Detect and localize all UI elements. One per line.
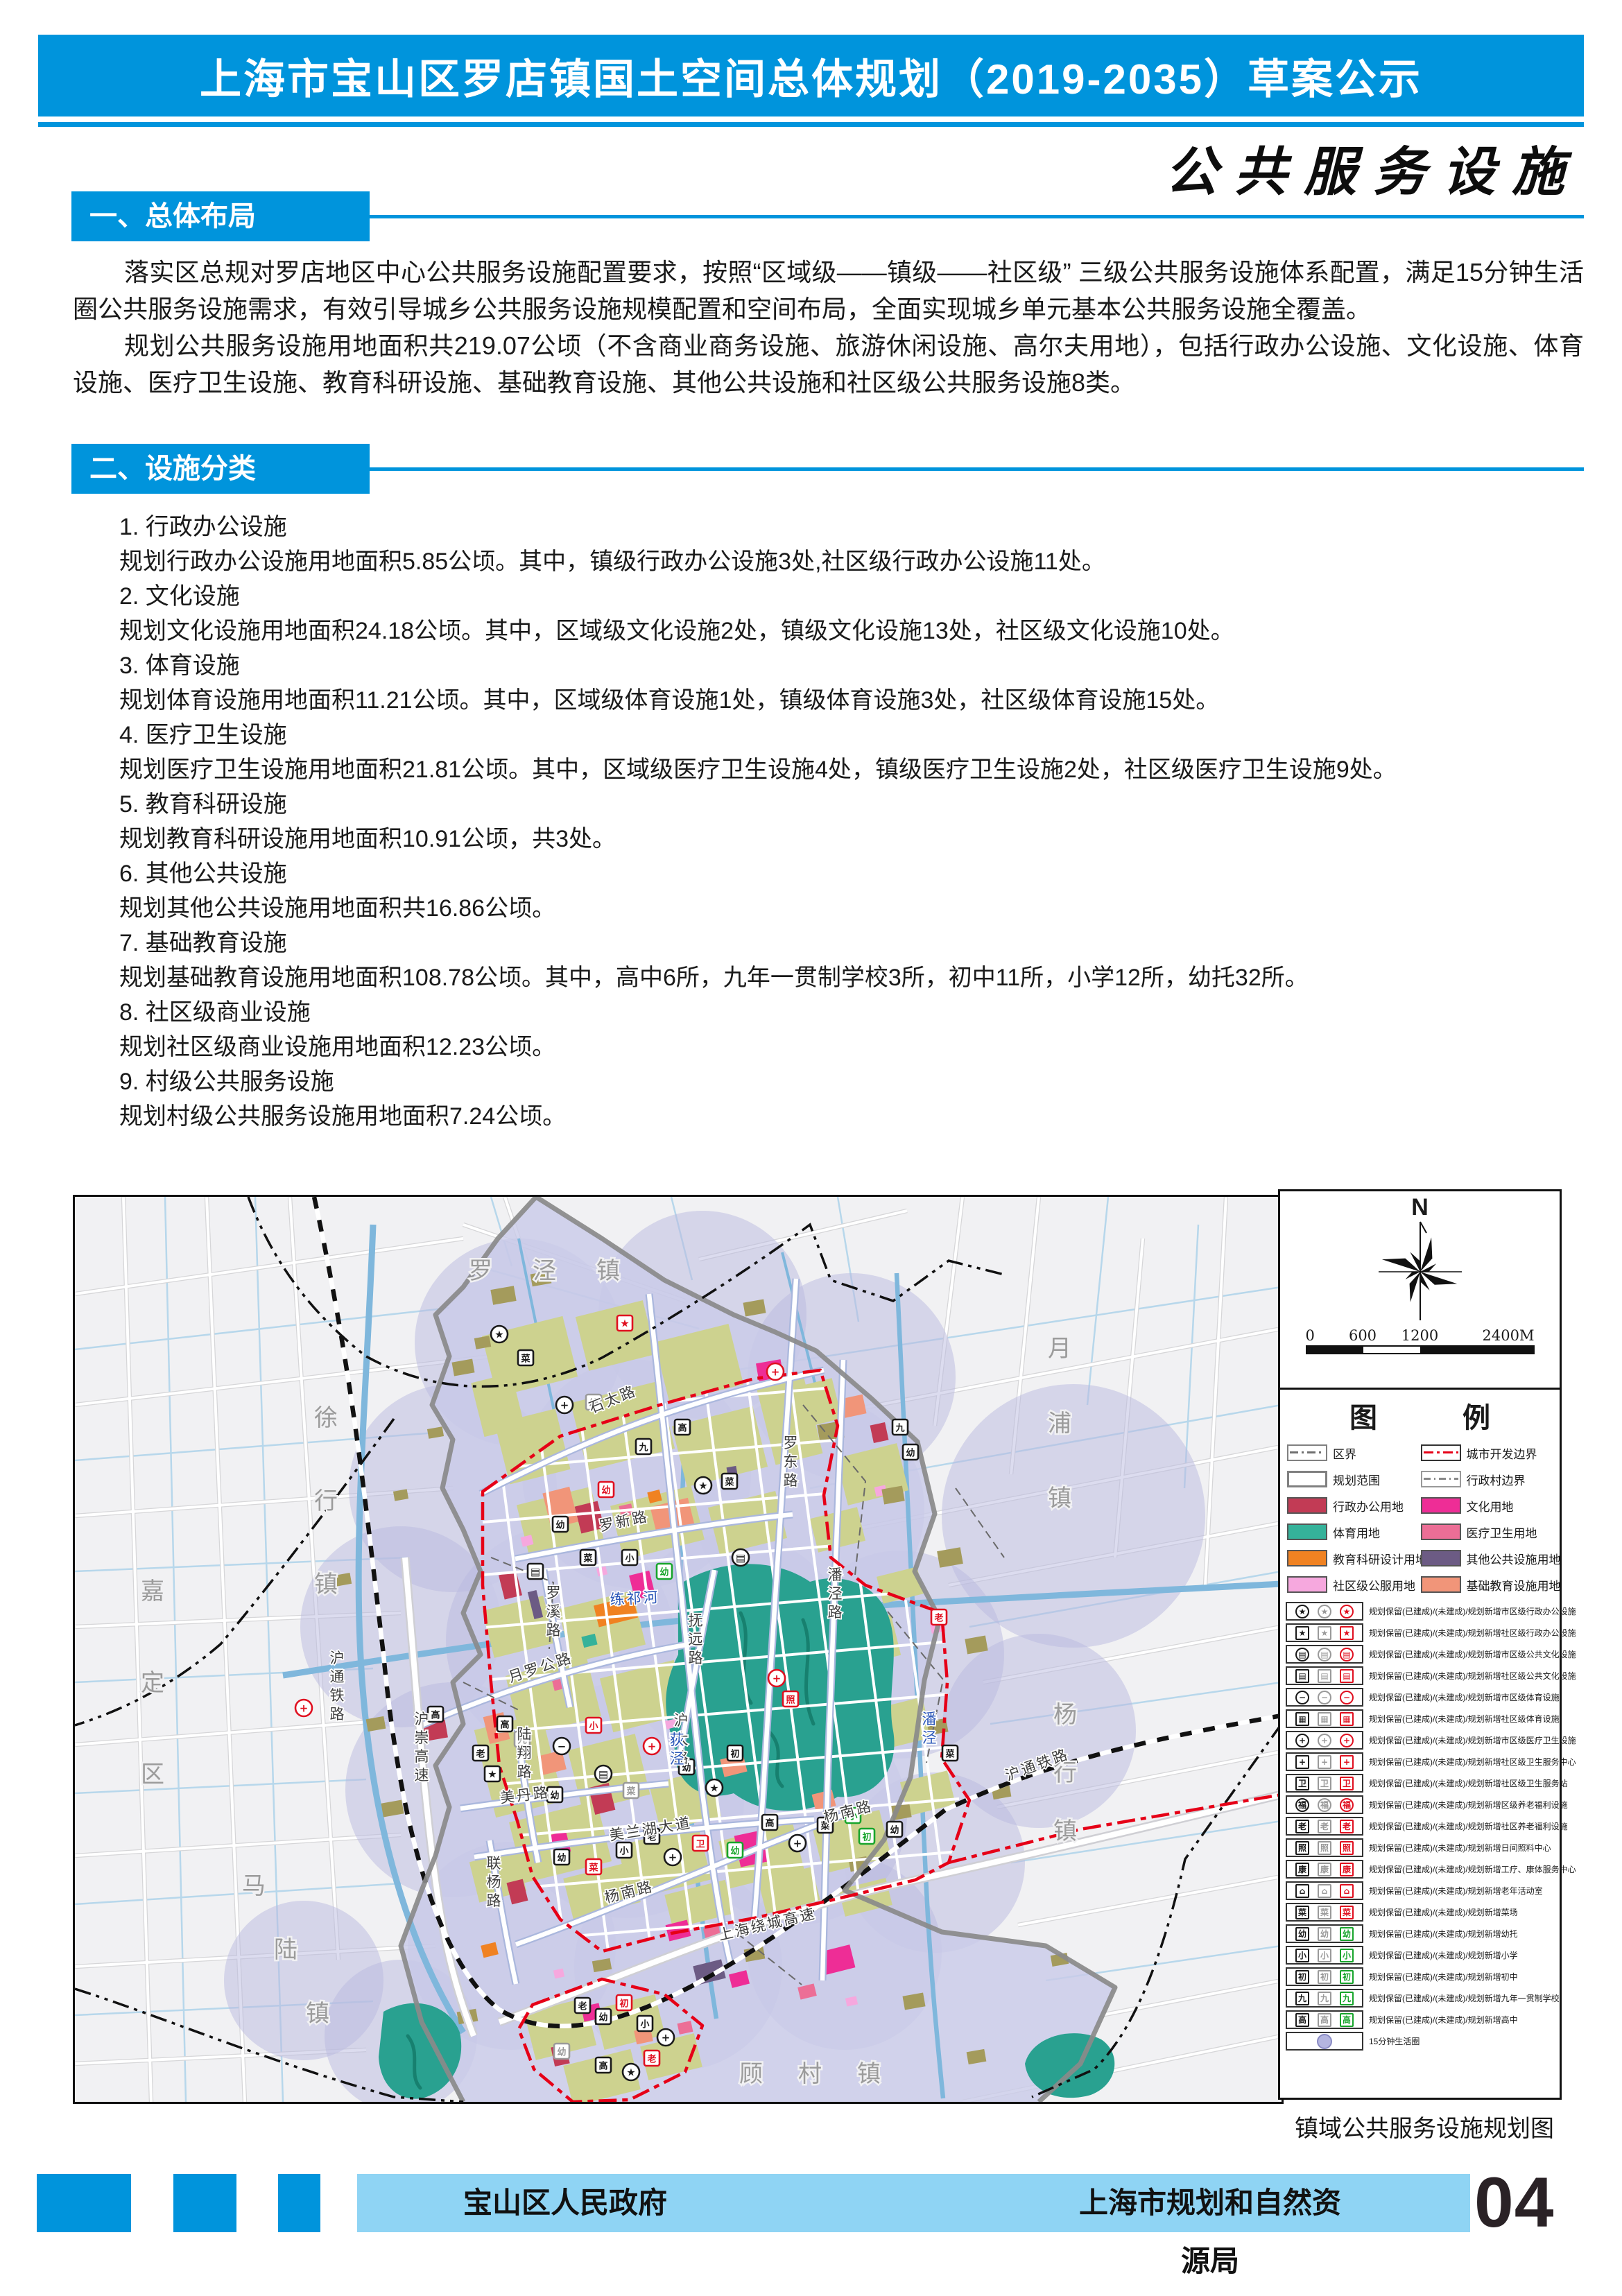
facility-item-desc: 规划教育科研设施用地面积10.91公顷，共3处。 [119,822,1582,856]
scale-ticks: 060012002400M [1306,1327,1535,1345]
footer-org-right: 上海市规划和自然资源局 [1071,2174,1349,2232]
svg-text:幼: 幼 [557,2047,566,2058]
svg-text:▤: ▤ [598,1768,608,1781]
facility-item-desc: 规划体育设施用地面积11.21公顷。其中，区域级体育设施1处，镇级体育设施3处，… [119,683,1582,718]
facility-symbol-icon: 福 [1295,1798,1309,1812]
legend-symbol-item: −−−规划保留(已建成)/(未建成)/规划新增市区级体育设施 [1286,1686,1555,1708]
facility-symbol-icon: 照 [1295,1841,1309,1855]
road-label: 高 [415,1749,429,1765]
svg-text:高: 高 [765,1818,774,1829]
facility-symbol-icon: 照 [1340,1841,1354,1855]
page-number: 04 [1474,2162,1554,2243]
svg-text:老: 老 [646,2054,656,2065]
facility-symbol-icon: 小 [1318,1949,1331,1962]
legend-symbol-item: 福福福规划保留(已建成)/(未建成)/规划新增区级养老福利设施 [1286,1794,1555,1815]
svg-text:九: 九 [638,1443,648,1453]
facility-symbol-icon: ▤ [1318,1669,1331,1683]
facility-symbol-icon: 卫 [1295,1777,1309,1790]
road-label: 铁 [330,1688,345,1704]
road-label: 东 [784,1454,798,1470]
svg-text:菜: 菜 [625,1786,635,1797]
facility-icon: 老 [931,1609,947,1625]
facility-icon: 初 [727,1745,743,1761]
facility-icon: 老 [473,1745,488,1761]
svg-text:菜: 菜 [583,1553,592,1564]
page-title: 上海市宝山区罗店镇国土空间总体规划（2019-2035）草案公示 [200,46,1422,106]
paragraph: 规划公共服务设施用地面积共219.07公顷（不含商业商务设施、旅游休闲设施、高尔… [73,327,1584,401]
life-circle-icon [1317,2034,1332,2049]
svg-text:幼: 幼 [906,1448,915,1459]
facility-icon: 老 [644,2051,659,2066]
svg-text:老: 老 [475,1749,485,1760]
facility-icon: − [553,1738,570,1754]
road-label: 杨 [487,1874,501,1890]
facility-symbol-icon: 康 [1295,1863,1309,1876]
facility-icon: 菜 [722,1474,737,1489]
legend-item: 规划范围 [1287,1471,1421,1488]
legend-symbol-item: 幼幼幼规划保留(已建成)/(未建成)/规划新增幼托 [1286,1923,1555,1944]
road-label: 罗 [784,1435,798,1451]
facility-item-title: 2. 文化设施 [119,579,1582,614]
facility-symbol-icon: 福 [1340,1798,1354,1812]
facility-item-title: 8. 社区级商业设施 [119,995,1582,1030]
facility-symbol-icon: 高 [1295,2013,1309,2027]
north-scale-box: N 060012002400M [1280,1191,1560,1390]
svg-text:+: + [648,1741,657,1753]
facility-icon: 幼 [598,1482,614,1497]
header-bar: 上海市宝山区罗店镇国土空间总体规划（2019-2035）草案公示 [38,35,1584,116]
facility-icon: 小 [616,1842,632,1858]
road-label: 路 [689,1650,703,1666]
poster-page: 上海市宝山区罗店镇国土空间总体规划（2019-2035）草案公示 公共服务设施 … [0,0,1622,2296]
legend-symbol-item: +++规划保留(已建成)/(未建成)/规划新增市区级医疗卫生设施 [1286,1729,1555,1751]
svg-text:+: + [793,1838,802,1850]
svg-text:幼: 幼 [730,1846,739,1857]
road-label: 潘 [828,1567,843,1583]
facility-item-desc: 规划村级公共服务设施用地面积7.24公顷。 [119,1099,1582,1134]
facility-symbol-icon: 菜 [1295,1906,1309,1919]
scale-bar: 060012002400M [1306,1327,1535,1354]
facility-icon: ★ [485,1766,500,1781]
svg-text:九: 九 [895,1424,904,1434]
facility-icon: 菜 [623,1783,639,1798]
road-label: 沪 [415,1711,429,1727]
road-label: 路 [784,1473,798,1489]
facility-symbol-icon: 高 [1340,2013,1354,2027]
svg-text:幼: 幼 [555,1520,564,1531]
facility-symbol-icon: ★ [1318,1605,1331,1619]
svg-text:小: 小 [640,2020,649,2030]
section1-heading: 一、总体布局 [71,191,370,241]
scale-strip [1306,1345,1535,1354]
facility-item-desc: 规划医疗卫生设施用地面积21.81公顷。其中，区域级医疗卫生设施4处，镇级医疗卫… [119,752,1582,787]
svg-text:★: ★ [488,1768,497,1781]
facility-symbol-icon: ★ [1340,1605,1354,1619]
road-label: 路 [330,1707,345,1723]
svg-text:高: 高 [598,2061,607,2072]
facility-icon: 菜 [942,1745,958,1761]
town-label: 顾 [739,2061,763,2087]
legend-symbol-rows: ★★★规划保留(已建成)/(未建成)/规划新增市区级行政办公设施★★★规划保留(… [1280,1598,1560,2052]
road-label: 联 [487,1856,501,1872]
facility-icon: + [295,1700,312,1716]
legend-item: 体育用地 [1287,1524,1421,1541]
legend-item: 其他公共设施用地 [1421,1550,1555,1567]
facility-icon: ★ [623,2064,639,2080]
facility-symbol-icon: 卫 [1318,1777,1331,1790]
legend-symbol-item: 康康康规划保留(已建成)/(未建成)/规划新增工疗、康体服务中心 [1286,1858,1555,1880]
svg-text:菜: 菜 [520,1354,530,1365]
svg-text:菜: 菜 [944,1749,954,1760]
town-label: 镇 [857,2061,881,2087]
road-label: 路 [487,1893,501,1909]
svg-text:幼: 幼 [557,1853,566,1864]
legend-symbol-item: ★★★规划保留(已建成)/(未建成)/规划新增市区级行政办公设施 [1286,1600,1555,1622]
road-label: 通 [330,1669,345,1685]
facility-icon: + [556,1397,573,1413]
facility-symbol-icon: + [1295,1734,1309,1747]
facility-icon: + [657,2029,674,2046]
facility-icon: 卫 [693,1836,708,1851]
facility-icon: ★ [695,1477,711,1494]
svg-text:+: + [560,1399,569,1412]
svg-text:+: + [668,1852,678,1864]
facility-symbol-icon: + [1318,1755,1331,1769]
facility-icon: 幼 [554,2044,569,2059]
svg-text:幼: 幼 [550,1790,559,1802]
facility-icon: 初 [859,1829,874,1844]
svg-text:★: ★ [698,1480,707,1492]
facility-icon: 小 [622,1550,637,1565]
facility-item-title: 9. 村级公共服务设施 [119,1064,1582,1099]
section1-rule [370,215,1584,218]
facility-icon: 照 [783,1691,798,1707]
facility-symbol-icon: 康 [1318,1863,1331,1876]
legend-symbol-item: ▤▤▤规划保留(已建成)/(未建成)/规划新增市区级公共文化设施 [1286,1643,1555,1665]
legend-item: 城市开发边界 [1421,1444,1555,1462]
facility-item-title: 3. 体育设施 [119,648,1582,683]
svg-text:老: 老 [933,1613,943,1624]
svg-text:小: 小 [589,1722,598,1732]
svg-text:▤: ▤ [530,1566,540,1578]
town-label: 镇 [596,1258,620,1284]
svg-text:幼: 幼 [598,2012,607,2023]
facility-icon: 初 [616,1995,632,2010]
facility-icon: 幼 [596,2009,611,2024]
svg-text:高: 高 [678,1423,687,1434]
road-label: 泾 [922,1730,937,1746]
facility-symbol-icon: 老 [1340,1820,1354,1833]
map-caption: 镇域公共服务设施规划图 [1295,2109,1554,2143]
line-ude-icon [1421,1444,1461,1461]
road-label: 速 [415,1768,429,1784]
town-label: 村 [798,2061,822,2087]
town-label: 区 [141,1761,164,1788]
facility-symbol-icon: ▤ [1318,1648,1331,1661]
facility-icon: + [789,1835,806,1852]
facility-symbol-icon: + [1340,1734,1354,1747]
facility-symbol-icon: − [1318,1691,1331,1704]
facility-item-desc: 规划社区级商业设施用地面积12.23公顷。 [119,1030,1582,1064]
legend-title: 图 例 [1280,1395,1560,1435]
facility-icon: ▤ [732,1549,749,1566]
legend-item: 社区级公服用地 [1287,1576,1421,1594]
facility-symbol-icon: ★ [1295,1605,1309,1619]
facility-icon: + [664,1849,681,1865]
facility-item-desc: 规划基础教育设施用地面积108.78公顷。其中，高中6所，九年一贯制学校3所，初… [119,960,1582,995]
road-label: 潘 [922,1711,937,1727]
legend-symbol-item: ▤▤▤规划保留(已建成)/(未建成)/规划新增社区级公共文化设施 [1286,1665,1555,1686]
legend-item: 医疗卫生用地 [1421,1524,1555,1541]
facility-symbol-icon: 九 [1340,1992,1354,2005]
facility-symbol-icon: ⌂ [1295,1884,1309,1898]
paragraph: 落实区总规对罗店地区中心公共服务设施配置要求，按照“区域级——镇级——社区级” … [73,254,1584,327]
svg-text:初: 初 [862,1832,871,1843]
legend-symbol-item: +++规划保留(已建成)/(未建成)/规划新增社区级卫生服务中心 [1286,1751,1555,1772]
town-label: 月 [1048,1336,1071,1362]
svg-text:▤: ▤ [736,1552,745,1564]
section2-rule [370,467,1584,471]
facility-item-title: 4. 医疗卫生设施 [119,718,1582,752]
facility-icon: + [768,1670,785,1686]
facility-symbol-icon: 康 [1340,1863,1354,1876]
svg-text:★: ★ [620,1318,629,1330]
facility-icon: 幼 [657,1564,672,1579]
facility-symbol-icon: 老 [1318,1820,1331,1833]
facility-symbol-icon: ▦ [1295,1712,1309,1726]
facility-icon: ★ [706,1779,723,1796]
facility-symbol-icon: ★ [1295,1626,1309,1640]
facility-symbol-icon: − [1295,1691,1309,1704]
compass-rose-icon [1365,1218,1476,1322]
map-side-panel: N 060012002400M 图 例 区界城市开发边界规划范围行政村边界行政办… [1278,1189,1562,2100]
facility-icon: + [644,1738,660,1754]
header-rule [38,122,1584,127]
facility-item-desc: 规划行政办公设施用地面积5.85公顷。其中，镇级行政办公设施3处,社区级行政办公… [119,544,1582,579]
town-label: 镇 [1053,1818,1077,1845]
facility-icon: 菜 [518,1350,533,1365]
legend-life-circle-item: 15分钟生活圈 [1286,2030,1555,2052]
facility-icon: ★ [617,1315,632,1331]
road-label: 抚 [689,1613,703,1629]
facility-symbol-icon: 幼 [1318,1927,1331,1941]
svg-text:★: ★ [626,2066,635,2079]
road-label: 溪 [546,1604,561,1620]
facility-icon: ▤ [595,1766,612,1782]
facility-icon: 高 [762,1815,777,1830]
facility-icon: 高 [596,2057,611,2073]
facility-symbol-icon: ★ [1340,1626,1354,1640]
legend-item: 行政村边界 [1421,1471,1555,1488]
town-label: 泾 [533,1258,556,1284]
facility-icon: 高 [497,1716,512,1732]
line-village-icon [1421,1471,1461,1487]
road-label: 荻 [670,1732,684,1748]
svg-text:+: + [662,2032,671,2044]
road-label: 崇 [415,1730,429,1746]
legend-symbol-item: 照照照规划保留(已建成)/(未建成)/规划新增日间照料中心 [1286,1837,1555,1858]
facility-icon: 小 [586,1718,601,1733]
facility-symbol-icon: 高 [1318,2013,1331,2027]
facility-icon: 九 [892,1419,908,1435]
svg-text:高: 高 [500,1720,509,1731]
facility-symbol-icon: + [1295,1755,1309,1769]
facility-icon: 九 [636,1439,651,1454]
footer-block-3 [278,2174,320,2232]
road-label: 练祁河 [610,1589,660,1608]
facility-item-desc: 规划其他公共设施用地面积共16.86公顷。 [119,891,1582,926]
facility-icon: 幼 [887,1822,902,1837]
town-label: 杨 [1053,1702,1077,1728]
road-label: 路 [546,1623,561,1639]
facility-symbol-icon: 小 [1340,1949,1354,1962]
footer-bar: 宝山区人民政府 上海市规划和自然资源局 [357,2174,1470,2232]
svg-text:初: 初 [730,1749,739,1760]
road-label: 翔 [517,1745,532,1761]
facility-symbol-icon: + [1340,1755,1354,1769]
facility-item-title: 6. 其他公共设施 [119,856,1582,891]
facility-symbol-icon: 菜 [1340,1906,1354,1919]
facility-symbol-icon: 幼 [1295,1927,1309,1941]
legend-symbol-item: ⌂⌂⌂规划保留(已建成)/(未建成)/规划新增老年活动室 [1286,1880,1555,1901]
svg-text:菜: 菜 [724,1477,734,1488]
facility-symbol-icon: ⌂ [1340,1884,1354,1898]
legend-item: 文化用地 [1421,1497,1555,1514]
legend-item: 行政办公用地 [1287,1497,1421,1514]
facility-icon: 老 [575,1998,590,2013]
road-label: 陆 [517,1727,532,1743]
facility-symbol-icon: 福 [1318,1798,1331,1812]
facility-icon: 高 [428,1707,443,1722]
facility-icon: 幼 [727,1842,743,1858]
facility-item-desc: 规划文化设施用地面积24.18公顷。其中，区域级文化设施2处，镇级文化设施13处… [119,614,1582,648]
facility-item-title: 5. 教育科研设施 [119,787,1582,822]
legend-landuse-grid: 区界城市开发边界规划范围行政村边界行政办公用地文化用地体育用地医疗卫生用地教育科… [1280,1438,1560,1598]
svg-text:−: − [558,1741,567,1753]
facility-symbol-icon: 老 [1295,1820,1309,1833]
svg-text:幼: 幼 [601,1485,610,1496]
facility-icon: 小 [637,2016,653,2031]
facility-symbol-icon: 九 [1318,1992,1331,2005]
facility-symbol-icon: 菜 [1318,1906,1331,1919]
svg-text:幼: 幼 [890,1825,899,1836]
town-label: 嘉 [141,1578,164,1605]
facility-icon: 幼 [903,1444,918,1460]
legend-item: 区界 [1287,1444,1421,1462]
facility-symbol-icon: ⌂ [1318,1884,1331,1898]
town-label: 镇 [306,2001,329,2027]
svg-text:幼: 幼 [659,1567,668,1578]
road-label: 路 [517,1764,532,1780]
facility-icon: 高 [675,1419,690,1435]
facility-symbol-icon: 九 [1295,1992,1309,2005]
town-label: 罗 [469,1258,492,1284]
town-label: 徐 [314,1405,338,1431]
town-label: 镇 [1048,1485,1071,1512]
legend-symbol-item: ★★★规划保留(已建成)/(未建成)/规划新增社区级行政办公设施 [1286,1622,1555,1643]
road-label: 罗 [546,1585,561,1601]
facility-symbol-icon: ▤ [1295,1648,1309,1661]
page-subtitle: 公共服务设施 [1165,129,1581,205]
svg-text:★: ★ [709,1782,718,1795]
town-label: 行 [314,1488,338,1514]
svg-text:高: 高 [431,1710,440,1721]
svg-text:+: + [773,1673,782,1685]
footer-block-1 [37,2174,131,2232]
svg-text:★: ★ [494,1329,503,1341]
town-label: 镇 [314,1571,338,1598]
svg-text:初: 初 [619,1999,628,2010]
facility-symbol-icon: + [1318,1734,1331,1747]
road-label: 远 [689,1632,703,1648]
facility-symbol-icon: 初 [1295,1970,1309,1984]
legend-symbol-item: 小小小规划保留(已建成)/(未建成)/规划新增小学 [1286,1944,1555,1966]
svg-text:菜: 菜 [588,1863,598,1874]
svg-text:+: + [771,1366,780,1379]
facility-icon: 幼 [554,1849,569,1865]
facility-icon: ★ [491,1326,508,1343]
facility-symbol-icon: ▦ [1340,1712,1354,1726]
facility-symbol-icon: 卫 [1340,1777,1354,1790]
legend-symbol-item: 初初初规划保留(已建成)/(未建成)/规划新增初中 [1286,1966,1555,1987]
svg-text:老: 老 [577,2001,587,2012]
legend-symbol-item: 九九九规划保留(已建成)/(未建成)/规划新增九年一贯制学校 [1286,1987,1555,2009]
town-label: 定 [141,1670,164,1696]
facility-symbol-icon: 初 [1318,1970,1331,1984]
facility-symbol-icon: 初 [1340,1970,1354,1984]
legend-symbol-item: 菜菜菜规划保留(已建成)/(未建成)/规划新增菜场 [1286,1901,1555,1923]
svg-text:照: 照 [786,1695,795,1706]
legend-item: 教育科研设计用地 [1287,1550,1421,1567]
facility-symbol-icon: 照 [1318,1841,1331,1855]
road-label: 路 [828,1605,843,1621]
footer-org-left: 宝山区人民政府 [440,2174,690,2232]
road-label: 沪 [330,1650,345,1666]
town-label: 陆 [274,1937,297,1963]
svg-text:小: 小 [625,1554,634,1564]
legend-symbol-item: 老老老规划保留(已建成)/(未建成)/规划新增社区养老福利设施 [1286,1815,1555,1837]
legend-symbol-item: 卫卫卫规划保留(已建成)/(未建成)/规划新增社区级卫生服务站 [1286,1772,1555,1794]
section2-heading: 二、设施分类 [71,444,370,494]
facility-symbol-icon: ▤ [1340,1648,1354,1661]
facility-icon: + [767,1363,784,1380]
facility-icon: 菜 [580,1550,596,1565]
facility-list: 1. 行政办公设施规划行政办公设施用地面积5.85公顷。其中，镇级行政办公设施3… [119,510,1582,1134]
facility-icon: ▤ [528,1564,543,1579]
facility-icon: 菜 [586,1859,601,1874]
facility-symbol-icon: ▦ [1318,1712,1331,1726]
planning-map: ★菜★+幼高九幼★菜幼菜▤小幼▤+九幼高老★九−小幼▤菜+幼★初+照幼菜小老+卫… [73,1195,1284,2104]
legend-symbol-item: ▦▦▦规划保留(已建成)/(未建成)/规划新增社区级体育设施 [1286,1708,1555,1729]
facility-icon: 幼 [553,1517,568,1532]
road-label: 泾 [670,1751,684,1767]
facility-symbol-icon: ★ [1318,1626,1331,1640]
road-label: 沪 [674,1713,689,1729]
facility-symbol-icon: ▤ [1295,1669,1309,1683]
legend-item: 基础教育设施用地 [1421,1576,1555,1594]
town-label: 浦 [1048,1410,1071,1437]
line-district-icon [1287,1444,1327,1461]
footer-block-2 [173,2174,236,2232]
svg-text:小: 小 [619,1847,628,1857]
facility-symbol-icon: 幼 [1340,1927,1354,1941]
section1-paragraphs: 落实区总规对罗店地区中心公共服务设施配置要求，按照“区域级——镇级——社区级” … [73,254,1584,401]
facility-symbol-icon: 小 [1295,1949,1309,1962]
legend-symbol-item: 高高高规划保留(已建成)/(未建成)/规划新增高中 [1286,2009,1555,2030]
line-plan-icon [1287,1471,1327,1487]
town-label: 马 [242,1873,266,1899]
facility-item-title: 7. 基础教育设施 [119,926,1582,960]
